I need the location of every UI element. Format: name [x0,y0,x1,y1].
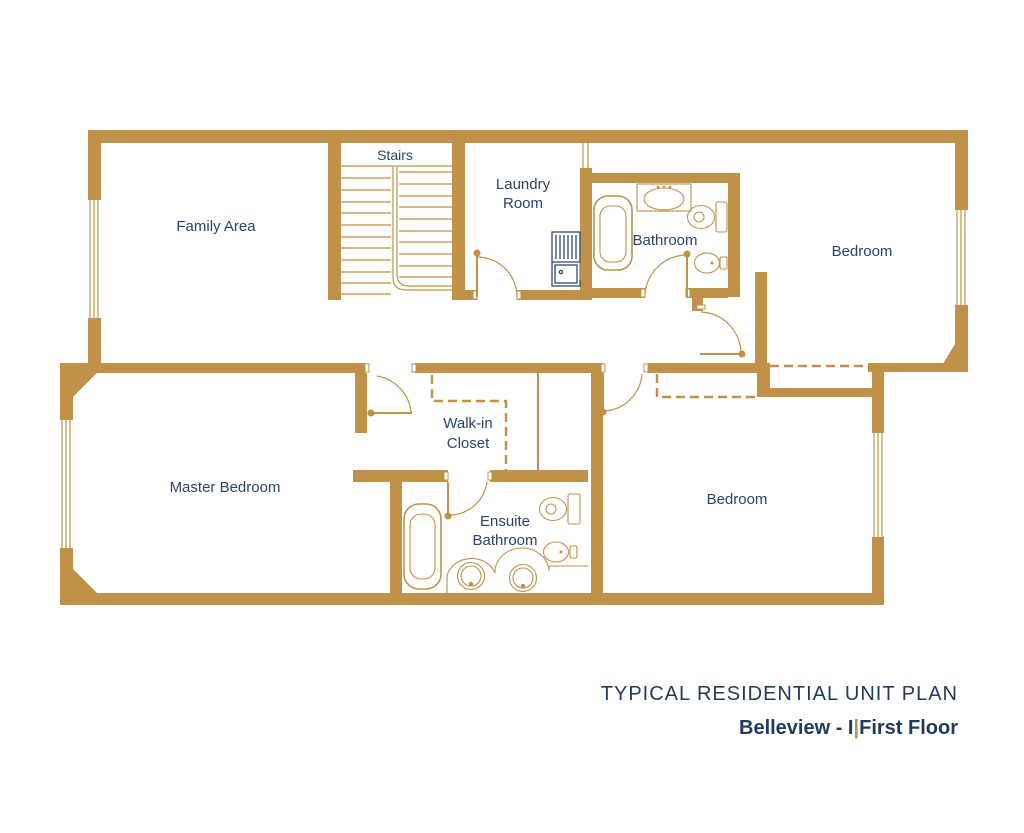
floor-plan-page: Family Area Stairs Laundry Room Bathroom… [0,0,1024,833]
plan-subtitle: Belleview - I|First Floor [739,717,958,739]
ensuite-label-1: Ensuite [480,513,530,530]
family-area-label: Family Area [176,218,256,235]
plan-brand: Belleview - I [739,717,854,739]
bedroom-top-label: Bedroom [832,243,893,260]
bedroom-top-window [957,210,965,305]
plan-title: TYPICAL RESIDENTIAL UNIT PLAN [601,683,958,705]
walkin-closet-label-1: Walk-in [443,415,492,432]
double-vanity-icon [447,548,588,593]
laundry-room-label-2: Room [503,195,543,212]
walkin-closet-label-2: Closet [447,435,490,452]
stairs-treads-right [399,172,452,277]
title-block: TYPICAL RESIDENTIAL UNIT PLAN Belleview … [601,683,958,739]
bathroom-door [641,251,691,298]
master-bedroom-label: Master Bedroom [170,479,281,496]
laundry-door [473,250,521,300]
bedroom-top-door [697,305,746,358]
floor-plan: Family Area Stairs Laundry Room Bathroom… [0,0,1024,833]
master-bedroom-door [365,364,416,417]
bedroom-bottom-window [874,433,882,537]
stairs-rail [393,167,452,290]
bedroom-bottom-door [600,364,649,416]
family-area-window [90,200,98,318]
ensuite-toilet-icon [540,494,581,524]
bedroom-bottom-closet [657,374,755,397]
plan-floor: First Floor [859,717,958,739]
laundry-room-label-1: Laundry [496,176,551,193]
ensuite-bathtub-icon [404,504,441,589]
bedroom-bottom-label: Bedroom [707,491,768,508]
stairs-treads-left [341,178,391,294]
bathtub-icon [594,196,632,270]
toilet-icon [688,202,728,232]
master-bedroom-window [62,420,70,548]
bidet-icon [695,253,728,273]
sink-icon [637,184,691,211]
stairs-label: Stairs [377,147,413,163]
room-labels: Family Area Stairs Laundry Room Bathroom… [170,147,893,549]
ensuite-bidet-icon [544,542,578,562]
bathroom-label: Bathroom [632,232,697,249]
ensuite-label-2: Bathroom [472,532,537,549]
closet-dashed-lines [432,366,868,470]
stairs-graphic [341,166,452,294]
